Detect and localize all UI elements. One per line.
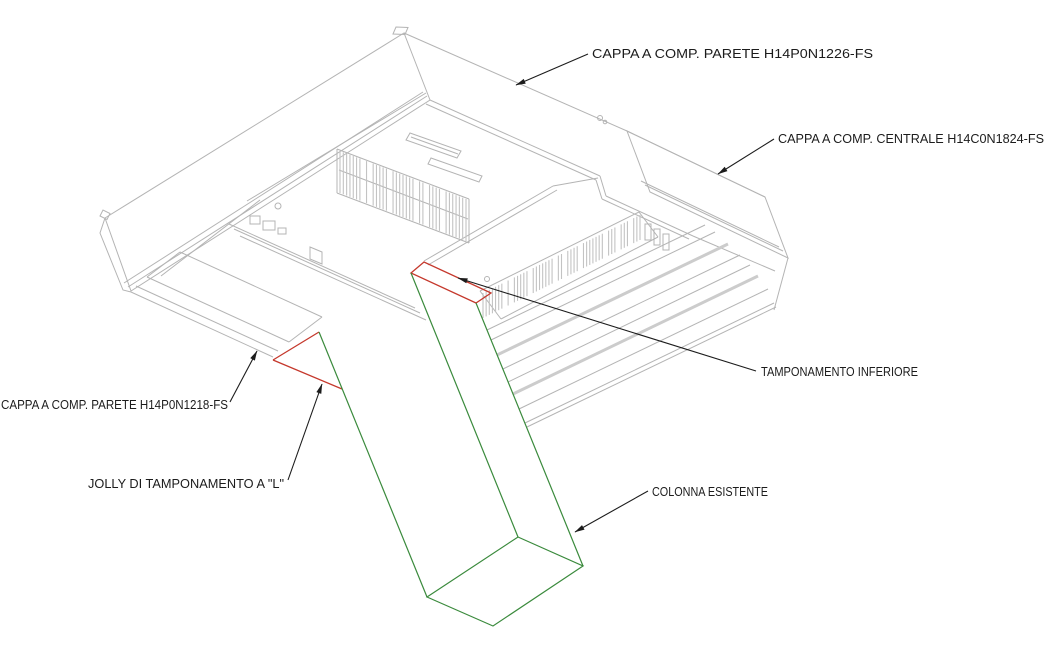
- label-jolly: JOLLY DI TAMPONAMENTO A "L": [88, 477, 284, 491]
- hood-1226-front-band: [105, 33, 430, 291]
- label-cappa-centrale: CAPPA A COMP. CENTRALE H14C0N1824-FS: [778, 132, 1044, 146]
- label-cappa-parete-top: CAPPA A COMP. PARETE H14P0N1226-FS: [592, 47, 873, 61]
- hood-isometric-drawing: CAPPA A COMP. PARETE H14P0N1226-FS CAPPA…: [0, 0, 1057, 648]
- hood-structure: [100, 27, 788, 357]
- tamponamento-inferiore-panel: [411, 262, 491, 303]
- label-cappa-parete-left: CAPPA A COMP. PARETE H14P0N1218-FS: [1, 398, 228, 412]
- hood-1218-end-cap: [100, 218, 131, 292]
- annotation-labels: CAPPA A COMP. PARETE H14P0N1226-FS CAPPA…: [1, 47, 1044, 499]
- leader-jolly: [288, 384, 322, 480]
- colonna-esistente-outline: [319, 273, 583, 626]
- leader-cappa-centrale: [718, 139, 774, 174]
- vent-slot-2: [428, 158, 482, 182]
- leader-colonna: [575, 491, 648, 532]
- colonna-bottom-face: [427, 537, 583, 626]
- label-tamponamento-inf: TAMPONAMENTO INFERIORE: [761, 365, 918, 379]
- hood-1824-underside-strips: [487, 225, 776, 427]
- leader-cappa-parete-left: [230, 351, 257, 402]
- tamponamento-panels: [273, 262, 491, 389]
- leader-tamponamento-inf: [458, 278, 756, 371]
- technical-drawing-page: CAPPA A COMP. PARETE H14P0N1226-FS CAPPA…: [0, 0, 1057, 648]
- filter-bank-1: [337, 149, 469, 243]
- filter-bank-1-hatch: [340, 151, 466, 241]
- filter-bank-2-hatch: [483, 215, 640, 318]
- label-colonna: COLONNA ESISTENTE: [652, 485, 768, 499]
- leader-cappa-parete-top: [516, 54, 588, 85]
